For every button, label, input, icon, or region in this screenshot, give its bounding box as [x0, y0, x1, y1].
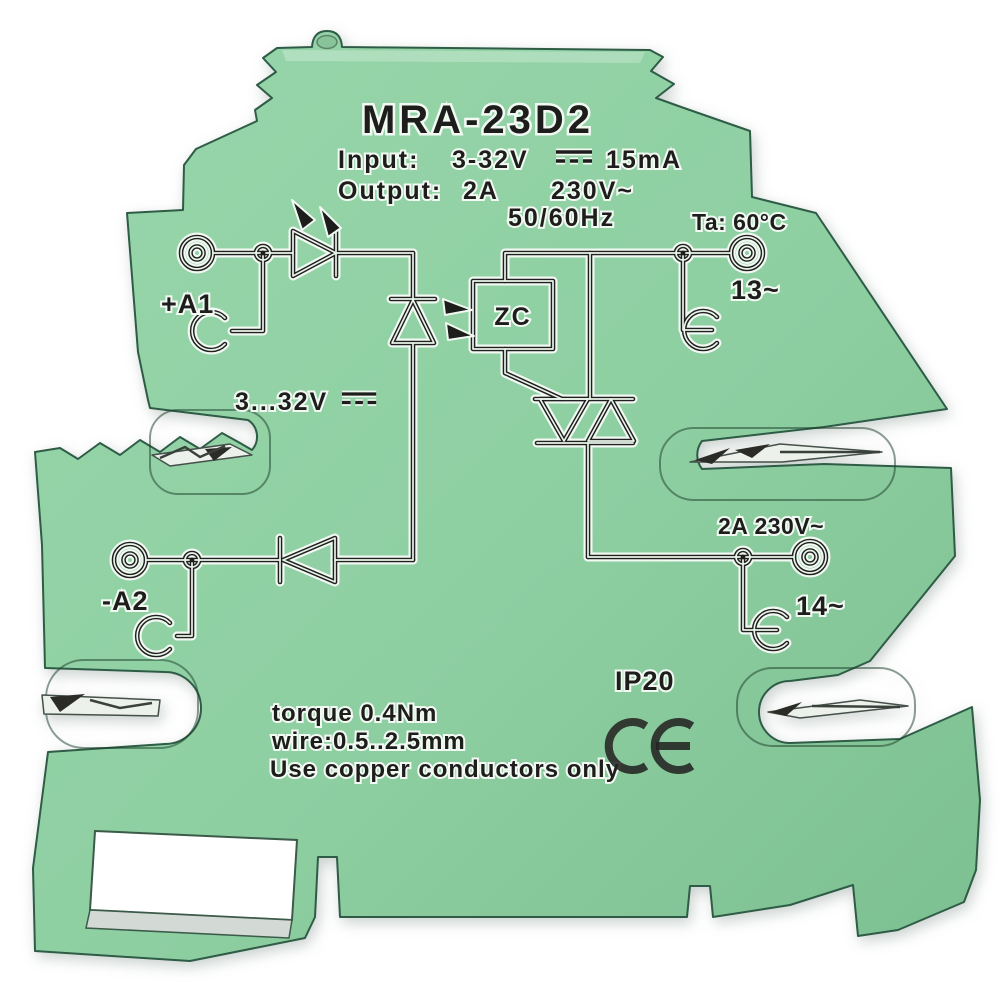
copper-note: Use copper conductors only	[270, 756, 620, 783]
input-voltage: 3-32V	[452, 146, 529, 174]
zc-label: ZC	[494, 303, 531, 331]
terminal-13-label: 13~	[731, 275, 780, 305]
clamp-spring-left-foot	[42, 694, 160, 716]
ambient-temperature: Ta: 60°C	[692, 209, 787, 235]
terminal-14-label: 14~	[796, 591, 845, 621]
clamp-spring-output	[690, 444, 882, 464]
terminal-a2-label: -A2	[102, 586, 149, 616]
input-current: 15mA	[606, 146, 682, 174]
top-face-highlight	[282, 50, 645, 63]
output-current: 2A	[463, 177, 499, 205]
output-voltage: 230V~	[551, 177, 634, 205]
output-frequency: 50/60Hz	[508, 204, 615, 232]
input-range-label: 3...32V	[235, 388, 328, 416]
din-rail-window	[86, 831, 297, 938]
wire-note: wire:0.5..2.5mm	[271, 728, 466, 755]
input-label: Input:	[338, 146, 419, 174]
output-rating-label: 2A 230V~	[718, 513, 824, 539]
output-label: Output:	[338, 177, 442, 205]
ip-rating: IP20	[615, 666, 675, 696]
product-photo: MRA-23D2 Input: 3-32V 15mA Output: 2A 23…	[0, 0, 1001, 1001]
model-number: MRA-23D2	[362, 98, 594, 142]
clamp-spring-right-foot	[768, 700, 908, 718]
screw-dome	[317, 36, 337, 49]
terminal-a1-label: +A1	[161, 289, 214, 319]
torque-note: torque 0.4Nm	[272, 700, 437, 727]
